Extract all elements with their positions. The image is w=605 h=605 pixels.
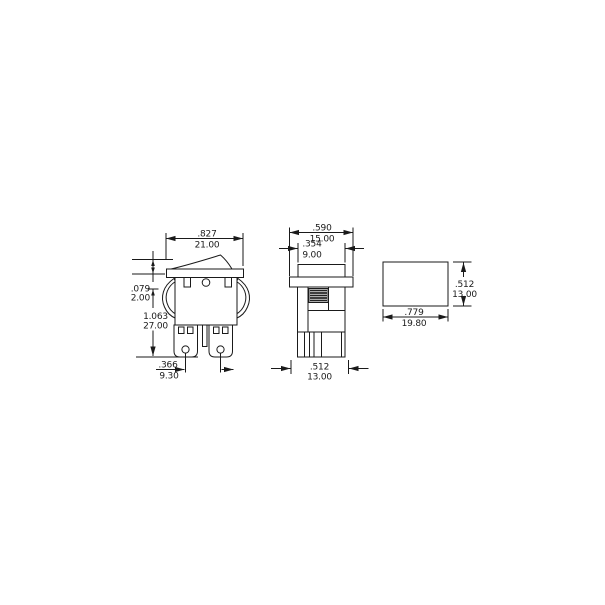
rocker-actuator-profile <box>171 255 232 269</box>
terminal-hole-right <box>217 346 224 353</box>
terminal-hole-left <box>182 346 189 353</box>
spring-clip-front <box>309 289 328 303</box>
dim-front-body-width-mm: 13.00 <box>307 373 332 383</box>
rocker-cap-front <box>298 265 345 278</box>
dim-front-actuator-width: .354 9.00 <box>279 240 364 263</box>
dim-cutout-height: .512 13.00 <box>452 262 477 306</box>
dim-cutout-height-mm: 13.00 <box>452 290 477 300</box>
dim-side-terminal-spacing-mm: 9.30 <box>159 372 179 382</box>
terminal-right <box>209 325 233 357</box>
bezel-rib-right <box>225 278 232 288</box>
dim-cutout-width: .779 19.80 <box>383 308 448 329</box>
dim-front-actuator-width-in: .354 <box>302 240 322 250</box>
drawing-canvas: .827 21.00 .079 2.00 1.063 27 <box>0 0 605 605</box>
dim-cutout-width-mm: 19.80 <box>402 319 427 329</box>
bezel-front <box>290 277 354 287</box>
dim-side-terminal-spacing: .366 9.30 <box>156 354 234 382</box>
body-hole <box>202 279 210 287</box>
dim-side-overall-width-in: .827 <box>197 230 216 240</box>
front-view: .590 15.00 .354 9.00 .512 13.00 <box>271 224 369 383</box>
bezel-rib-left <box>184 278 191 288</box>
side-view: .827 21.00 .079 2.00 1.063 27 <box>131 230 250 382</box>
dim-side-overall-height-mm: 27.00 <box>143 322 168 332</box>
dim-front-body-width-in: .512 <box>310 363 329 373</box>
dim-front-bezel-width-in: .590 <box>312 224 332 234</box>
dim-side-bezel-height-mm: 2.00 <box>131 294 151 304</box>
rocker-switch-dimensional-drawing: .827 21.00 .079 2.00 1.063 27 <box>0 0 605 605</box>
bezel-side <box>167 269 244 278</box>
mounting-clip-right <box>236 279 250 319</box>
dim-front-body-width: .512 13.00 <box>271 360 369 383</box>
center-divider <box>203 325 208 347</box>
dim-cutout-width-in: .779 <box>404 308 424 318</box>
dim-side-overall-height-in: 1.063 <box>143 312 168 322</box>
dim-front-actuator-width-mm: 9.00 <box>302 251 322 261</box>
dim-cutout-height-in: .512 <box>455 280 474 290</box>
terminal-left <box>174 325 198 357</box>
dim-side-overall-width-mm: 21.00 <box>195 241 220 251</box>
panel-cutout-view: .779 19.80 .512 13.00 <box>383 262 477 329</box>
front-view-outline <box>290 265 354 358</box>
dim-side-terminal-spacing-in: .366 <box>158 361 178 371</box>
side-view-outline <box>162 255 249 357</box>
panel-cutout-rect <box>383 262 448 306</box>
